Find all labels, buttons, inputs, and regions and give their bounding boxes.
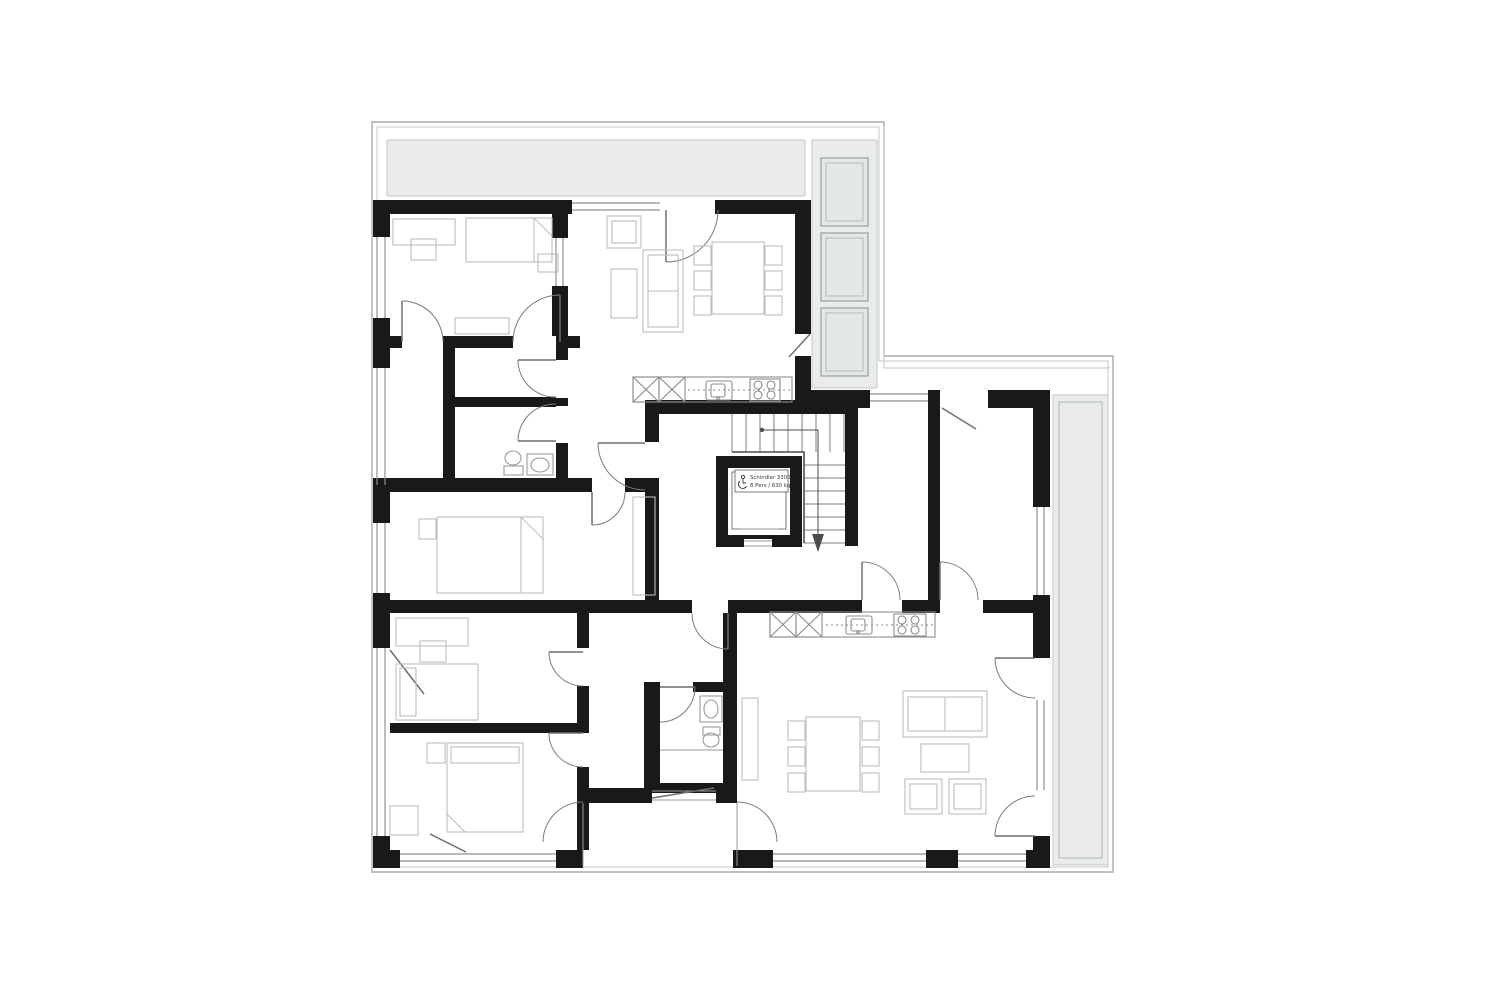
- elevator: Schindler 3300 8 Pers / 630 kg: [716, 456, 802, 549]
- terrace-top: [387, 140, 805, 196]
- tall-cabinets-icon: [633, 377, 685, 402]
- desk: [393, 219, 455, 245]
- armchair: [905, 779, 942, 814]
- living-lower-furniture: [742, 691, 987, 814]
- dresser: [455, 318, 509, 334]
- balcony-panel: [821, 158, 868, 226]
- armchair: [607, 216, 641, 248]
- bed: [396, 664, 478, 720]
- stair-treads-upper-flight: [732, 414, 844, 452]
- nightstand: [538, 254, 558, 272]
- chair: [411, 239, 436, 260]
- dresser: [390, 806, 418, 835]
- bedroom-b-furniture: [419, 497, 655, 595]
- dining-table-group: [788, 717, 879, 792]
- door-room-c: [862, 562, 900, 600]
- armchair: [949, 779, 986, 814]
- door-bathroom-upper: [518, 404, 556, 441]
- door-bedroom-a-left: [402, 301, 443, 342]
- door-bedroom-f: [549, 733, 583, 767]
- door-living-balcony-bottom: [995, 796, 1035, 836]
- nightstand: [419, 519, 436, 539]
- window-leaf-bottom: [430, 834, 466, 852]
- kitchen-lower: [770, 612, 935, 637]
- bed: [466, 218, 552, 262]
- toilet-icon: [504, 451, 523, 475]
- sofa: [643, 250, 683, 332]
- balcony-panel: [821, 233, 868, 301]
- door-bathroom-lower: [660, 687, 695, 722]
- bathroom-upper-fixtures: [504, 451, 553, 475]
- chair: [420, 641, 446, 662]
- sink-icon: [846, 616, 872, 634]
- bedroom-a-furniture: [393, 218, 558, 334]
- bedroom-f-furniture: [390, 743, 523, 835]
- door-left-french-leaf: [390, 650, 424, 694]
- nightstand: [427, 743, 445, 763]
- toilet-icon: [703, 727, 720, 747]
- door-upper-balcony-leaf: [789, 334, 810, 357]
- washbasin-icon: [527, 454, 553, 475]
- side-table: [611, 269, 637, 318]
- door-apartment-lower-entry: [692, 613, 728, 649]
- door-bedroom-b: [592, 492, 625, 525]
- bathroom-lower-fixtures: [660, 696, 723, 750]
- washbasin-icon: [700, 696, 722, 722]
- tall-cabinets-icon: [770, 612, 822, 637]
- elevator-capacity-text: 8 Pers / 630 kg: [750, 483, 790, 489]
- stair-treads-right-flight: [804, 465, 845, 543]
- sideboard: [742, 698, 758, 780]
- window-interior-partition: [556, 238, 563, 286]
- door-living-balcony-top: [995, 658, 1035, 698]
- door-reduit: [518, 360, 556, 397]
- coffee-table: [921, 744, 969, 772]
- desk: [396, 618, 468, 646]
- door-living-terrace: [666, 210, 718, 262]
- living-upper-furniture: [607, 216, 782, 332]
- balcony-panel: [821, 308, 868, 376]
- bed: [447, 743, 523, 832]
- balcony-right: [1053, 395, 1108, 865]
- balcony-panels: [821, 158, 868, 376]
- bedroom-e-furniture: [396, 618, 478, 720]
- elevator-brand-text: Schindler 3300: [750, 475, 791, 481]
- door-room-d-terrace-leaf: [942, 408, 976, 429]
- door-bedroom-e: [549, 652, 583, 686]
- door-room-d: [940, 562, 978, 600]
- floor-plan-page: Schindler 3300 8 Pers / 630 kg: [0, 0, 1500, 1000]
- floor-plan-canvas: Schindler 3300 8 Pers / 630 kg: [0, 0, 1500, 1000]
- window-living-top: [572, 203, 660, 210]
- kitchen-upper: [633, 377, 792, 402]
- window-room-c: [870, 394, 928, 401]
- bed: [437, 517, 543, 593]
- dining-table-group: [694, 242, 782, 315]
- sofa: [903, 691, 987, 737]
